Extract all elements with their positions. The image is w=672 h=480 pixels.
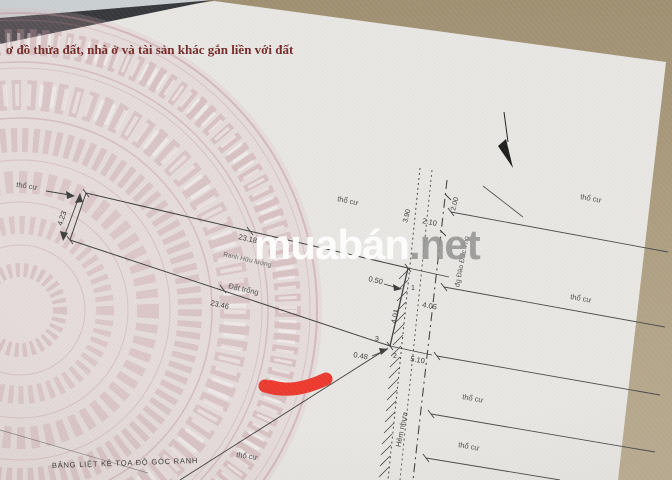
watermark-brand: muabán bbox=[254, 221, 409, 268]
point-label-1: 1 bbox=[411, 285, 415, 292]
point-label-3: 3 bbox=[375, 336, 379, 343]
muaban-watermark: muabán.net bbox=[254, 221, 481, 268]
watermark-suffix: .net bbox=[409, 221, 481, 268]
land-plot-diagram: ơ đồ thửa đất, nhà ở và tài sản khác gắn… bbox=[0, 0, 672, 480]
photo-of-land-certificate: ơ đồ thửa đất, nhà ở và tài sản khác gắn… bbox=[0, 0, 672, 480]
point-label-2: 2 bbox=[393, 353, 397, 360]
page-title: ơ đồ thửa đất, nhà ở và tài sản khác gắn… bbox=[6, 42, 294, 57]
